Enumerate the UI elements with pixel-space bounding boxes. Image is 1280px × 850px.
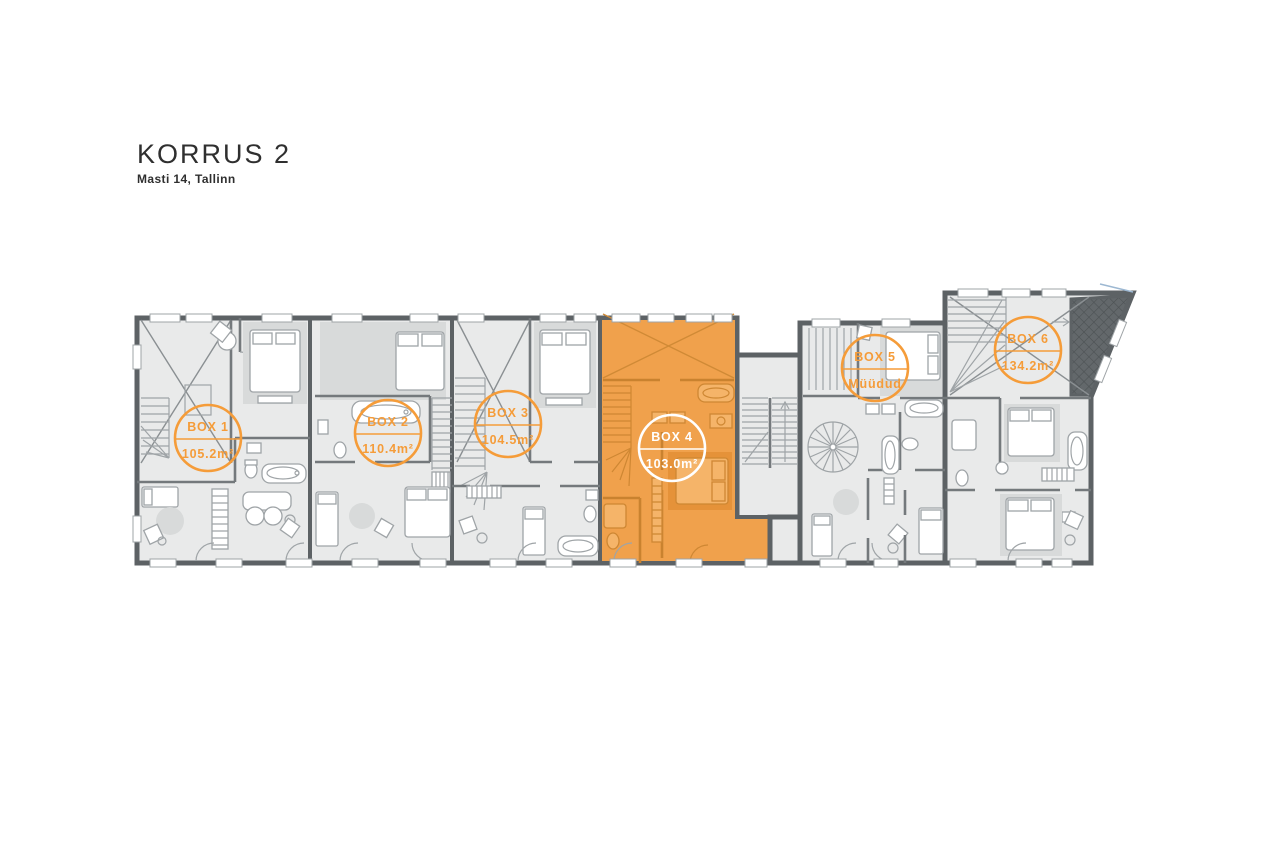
wardrobe-icon xyxy=(652,478,662,542)
unit-area: 105.2m² xyxy=(182,447,234,461)
bed-icon xyxy=(243,322,307,404)
bed-icon xyxy=(534,322,596,408)
sink-icon xyxy=(882,404,895,414)
wardrobe-icon xyxy=(467,486,501,498)
unit-name: BOX 2 xyxy=(367,415,409,429)
toilet-icon xyxy=(902,438,918,450)
rug-icon xyxy=(833,489,859,515)
wardrobe-icon xyxy=(884,478,894,504)
stairwell-storage-room xyxy=(770,517,800,563)
unit-area: 134.2m² xyxy=(1002,359,1054,373)
unit-name: BOX 3 xyxy=(487,406,529,420)
bed-icon xyxy=(919,508,943,554)
toilet-icon xyxy=(584,506,596,522)
bathtub-icon xyxy=(558,536,598,556)
unit-area: 103.0m² xyxy=(646,457,698,471)
bed-icon xyxy=(812,514,832,556)
bed-icon xyxy=(316,492,338,546)
bed-icon xyxy=(1000,494,1062,556)
bed-icon xyxy=(320,322,446,400)
rug-icon xyxy=(349,503,375,529)
sink-icon xyxy=(586,490,598,500)
bed-icon xyxy=(523,507,545,555)
unit-name: BOX 4 xyxy=(651,430,693,444)
unit-name: BOX 5 xyxy=(854,350,896,364)
floorplan-page: { "page": { "title": "KORRUS 2", "subtit… xyxy=(0,0,1280,850)
shower-icon xyxy=(952,420,976,450)
toilet-icon xyxy=(607,533,619,549)
unit-name: BOX 6 xyxy=(1007,332,1049,346)
unit-status: Müüdud xyxy=(848,377,901,391)
wardrobe-icon xyxy=(1042,468,1074,481)
sink-icon xyxy=(866,404,879,414)
floorplan-drawing: BOX 1 105.2m² BOX 2 110.4m² BOX 3 104.5m… xyxy=(0,0,1280,850)
spiral-stairs-icon xyxy=(808,422,858,472)
toilet-icon xyxy=(334,442,346,458)
sink-icon xyxy=(318,420,328,434)
washer-icon xyxy=(710,414,732,428)
unit-name: BOX 1 xyxy=(187,420,229,434)
toilet-icon xyxy=(956,470,968,486)
unit-area: 104.5m² xyxy=(482,433,534,447)
bed-icon xyxy=(405,487,450,537)
sink-icon xyxy=(247,443,261,453)
unit-area: 110.4m² xyxy=(362,442,413,456)
wardrobe-icon xyxy=(212,489,228,549)
shower-icon xyxy=(604,504,626,528)
desk-icon xyxy=(142,487,178,507)
